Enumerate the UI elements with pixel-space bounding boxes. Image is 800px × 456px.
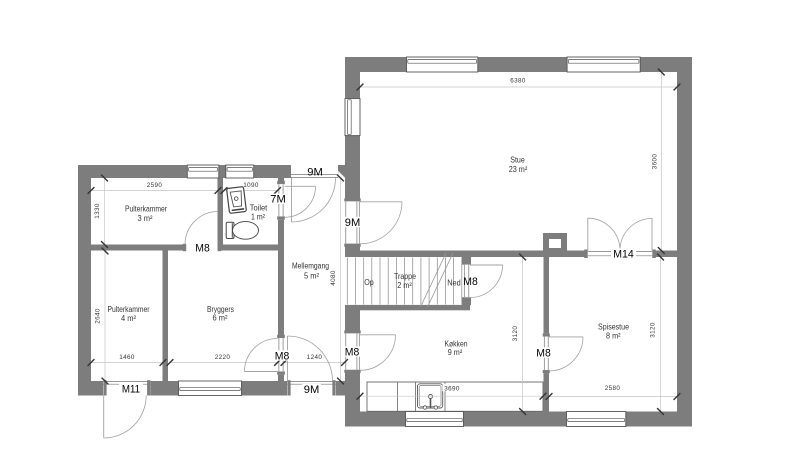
svg-text:Trappe: Trappe (394, 272, 417, 281)
svg-text:3120: 3120 (512, 326, 519, 342)
svg-text:2 m²: 2 m² (397, 281, 412, 290)
svg-text:M14: M14 (613, 248, 634, 260)
svg-text:9M: 9M (307, 166, 323, 178)
svg-text:M8: M8 (463, 276, 478, 288)
svg-text:Toilet: Toilet (250, 203, 268, 212)
svg-text:6 m²: 6 m² (213, 313, 228, 322)
svg-text:2580: 2580 (605, 385, 621, 392)
svg-text:Stue: Stue (510, 155, 525, 164)
svg-text:4080: 4080 (330, 270, 337, 286)
svg-text:Op: Op (364, 278, 374, 287)
svg-text:23 m²: 23 m² (509, 165, 528, 174)
svg-text:3690: 3690 (444, 386, 460, 393)
svg-text:6380: 6380 (510, 78, 526, 85)
svg-text:9 m²: 9 m² (448, 348, 463, 357)
svg-text:M8: M8 (536, 347, 551, 359)
svg-text:Spisestue: Spisestue (598, 323, 630, 332)
svg-text:1240: 1240 (307, 354, 323, 361)
svg-text:3600: 3600 (652, 154, 659, 170)
svg-text:1090: 1090 (243, 182, 259, 189)
svg-text:2590: 2590 (147, 182, 163, 189)
svg-text:2220: 2220 (215, 354, 231, 361)
svg-text:M8: M8 (195, 242, 210, 254)
svg-text:1330: 1330 (94, 203, 101, 219)
svg-text:2640: 2640 (94, 308, 101, 324)
svg-text:3 m²: 3 m² (138, 214, 153, 223)
svg-text:5 m²: 5 m² (304, 271, 319, 280)
svg-text:Pulterkammer: Pulterkammer (125, 204, 167, 213)
svg-text:Mellemgang: Mellemgang (292, 261, 329, 270)
svg-text:M11: M11 (122, 383, 140, 395)
svg-text:1 m²: 1 m² (251, 212, 265, 221)
svg-text:7M: 7M (270, 194, 286, 206)
svg-text:9M: 9M (304, 384, 320, 396)
svg-text:Pulterkammer: Pulterkammer (108, 305, 150, 314)
svg-text:9M: 9M (345, 217, 361, 229)
svg-text:8 m²: 8 m² (606, 331, 621, 340)
svg-text:M8: M8 (275, 350, 290, 362)
svg-text:3120: 3120 (650, 322, 657, 338)
svg-text:1460: 1460 (119, 354, 135, 361)
svg-text:M8: M8 (345, 346, 360, 358)
svg-text:Ned: Ned (447, 278, 461, 287)
svg-text:4 m²: 4 m² (121, 314, 136, 323)
